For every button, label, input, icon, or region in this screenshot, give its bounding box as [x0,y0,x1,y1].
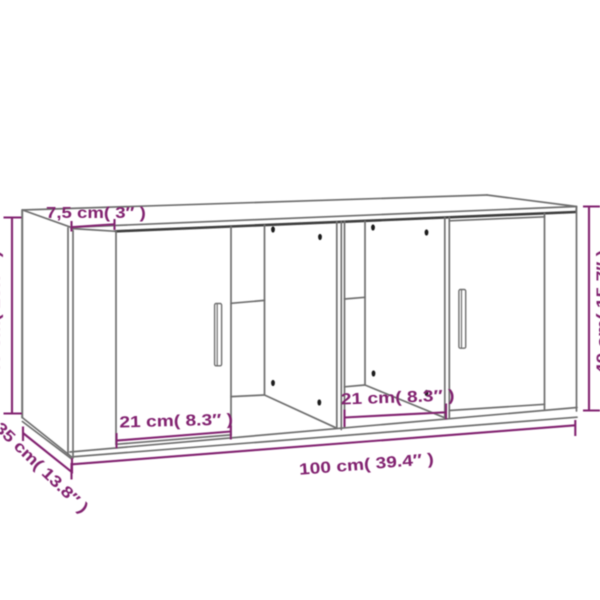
svg-text:40 cm( 15.7″ ): 40 cm( 15.7″ ) [0,251,3,375]
svg-text:40 cm( 15.7″ ): 40 cm( 15.7″ ) [593,250,600,374]
svg-text:7,5 cm( 3″ ): 7,5 cm( 3″ ) [46,204,146,221]
svg-text:21 cm( 8.3″ ): 21 cm( 8.3″ ) [340,386,454,408]
svg-text:21 cm( 8.3″ ): 21 cm( 8.3″ ) [119,410,233,431]
svg-text:35 cm( 13.8″ ): 35 cm( 13.8″ ) [0,418,92,516]
svg-text:100 cm( 39.4″ ): 100 cm( 39.4″ ) [298,450,434,479]
